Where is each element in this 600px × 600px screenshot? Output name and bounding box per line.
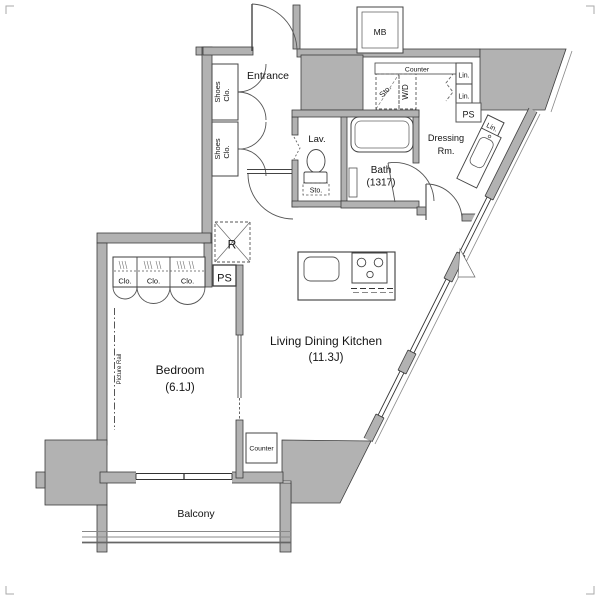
toilet-tank <box>304 172 327 183</box>
west-wall <box>202 47 212 243</box>
label-shoes-1b: Clo. <box>222 88 231 101</box>
floorplan-page: Entrance MB Shoes Clo. Shoes Clo. Counte… <box>0 0 600 600</box>
label-bath-size: (1317) <box>367 178 396 189</box>
label-entrance: Entrance <box>247 70 289 82</box>
label-ps-left: PS <box>217 273 232 285</box>
bedroom-west-wall <box>97 243 107 445</box>
entry-core-block <box>301 55 363 110</box>
label-bath: Bath <box>371 165 392 176</box>
label-lin-2: Lin. <box>458 94 469 101</box>
label-clo-1: Clo. <box>118 277 131 286</box>
label-wd: W/D <box>401 84 410 100</box>
toilet-bowl <box>307 150 325 173</box>
label-dressing-2: Rm. <box>438 146 455 156</box>
bath-counter <box>349 168 357 197</box>
label-mb: MB <box>374 27 387 37</box>
label-shoes-2: Shoes <box>213 138 222 160</box>
bath-north-wall <box>292 110 419 117</box>
label-shoes-2b: Clo. <box>222 145 231 158</box>
bath-south-wall <box>341 201 419 208</box>
label-fridge: R <box>228 238 237 252</box>
label-counter-top: Counter <box>405 67 430 74</box>
label-clo-2: Clo. <box>147 277 160 286</box>
label-ldk-size: (11.3J) <box>309 352 344 364</box>
label-clo-3: Clo. <box>181 277 194 286</box>
lav-west-wall <box>292 160 298 207</box>
label-balcony: Balcony <box>177 508 215 520</box>
label-lin-1: Lin. <box>458 73 469 80</box>
floorplan-drawing: Entrance MB Shoes Clo. Shoes Clo. Counte… <box>0 0 600 600</box>
lav-south-wall <box>292 201 347 207</box>
bathtub <box>351 117 413 152</box>
bedroom-ldk-wall-lower <box>236 420 243 478</box>
label-ldk: Living Dining Kitchen <box>270 334 382 348</box>
label-shoes-1: Shoes <box>213 81 222 103</box>
label-ps-right: PS <box>462 110 474 120</box>
label-bedroom-size: (6.1J) <box>165 382 195 394</box>
bath-east-wall <box>413 110 419 163</box>
label-sto-lav: Sto. <box>310 188 323 195</box>
balcony-left-wall <box>97 505 107 552</box>
label-picture-rail: Picture Rail <box>117 354 123 385</box>
label-dressing-1: Dressing <box>428 133 464 143</box>
bedroom-ldk-wall-upper <box>236 265 243 335</box>
lav-west-wall <box>292 117 298 135</box>
southwest-wall-block <box>45 440 107 505</box>
label-lav: Lav. <box>308 134 325 145</box>
kitchen-island <box>298 252 395 300</box>
north-wall-left <box>203 47 253 55</box>
lav-bath-wall <box>341 113 347 207</box>
bedroom-north-wall <box>97 233 211 243</box>
label-bedroom: Bedroom <box>156 363 205 377</box>
label-counter-bottom: Counter <box>249 446 274 453</box>
